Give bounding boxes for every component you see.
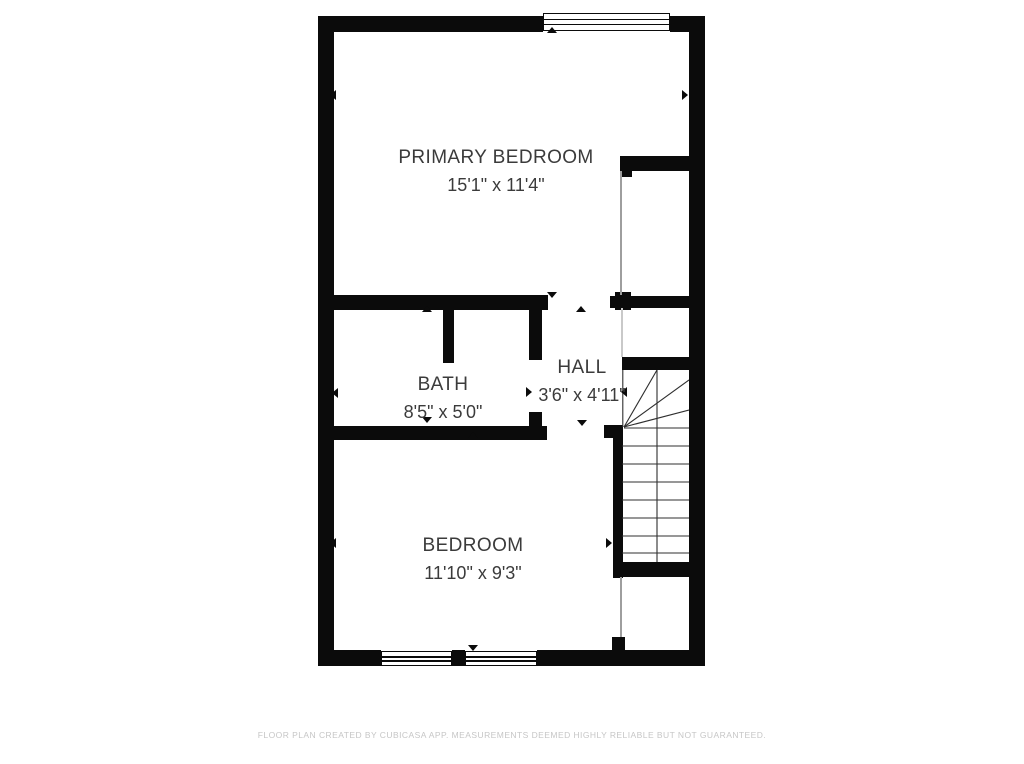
room-label-bedroom: BEDROOM 11'10" x 9'3" [373,535,573,584]
dim-marker-left-bath [332,388,338,398]
window-bottom-2 [465,651,537,666]
wall-stairs-south [613,562,689,577]
wall-bath-east-upper [529,295,542,360]
room-label-primary-bedroom: PRIMARY BEDROOM 15'1" x 11'4" [366,147,626,196]
window-pane-line [382,660,451,662]
floor-plan-canvas: PRIMARY BEDROOM 15'1" x 11'4" BATH 8'5" … [0,0,1024,764]
wall-post-hall-north [615,292,631,310]
wall-bottom-left [318,650,381,666]
dim-marker-up-hall [576,306,586,312]
room-dimensions: 15'1" x 11'4" [366,175,626,196]
wall-bath-partition [443,295,454,363]
room-name: BEDROOM [373,535,573,557]
floor-plan: PRIMARY BEDROOM 15'1" x 11'4" BATH 8'5" … [0,0,1024,764]
dim-marker-right-bedroom [606,538,612,548]
room-name: HALL [512,357,652,379]
dim-marker-down-hall [577,420,587,426]
wall-primary-bedroom-south [334,295,548,310]
wall-post-understair-closet [612,637,625,651]
room-dimensions: 11'10" x 9'3" [373,563,573,584]
dim-marker-up-bath [422,306,432,312]
wall-bottom-right [537,650,705,666]
wall-top-left [318,16,543,32]
window-pane-line [466,660,536,662]
wall-bottom-middle [452,650,465,666]
window-pane-line [382,656,451,658]
dim-marker-up-bedroom [468,432,478,438]
dim-marker-down-bedroom [468,645,478,651]
window-pane-line [544,19,669,21]
window-pane-line [544,24,669,26]
room-name: PRIMARY BEDROOM [366,147,626,169]
wall-left [318,16,334,666]
window-pane-line [466,656,536,658]
dim-marker-left-bedroom [330,538,336,548]
wall-bedroom-north [334,426,547,440]
dim-marker-left-primary-bedroom [330,90,336,100]
dim-marker-right-primary-bedroom [682,90,688,100]
window-bottom-1 [381,651,452,666]
dim-marker-up-primary-bedroom [547,27,557,33]
window-top [543,13,670,31]
wall-closet-north [622,156,705,171]
room-label-bath: BATH 8'5" x 5'0" [363,374,523,423]
room-dimensions: 8'5" x 5'0" [363,402,523,423]
wall-right [689,16,705,666]
footer-disclaimer: FLOOR PLAN CREATED BY CUBICASA APP. MEAS… [0,730,1024,740]
room-label-hall: HALL 3'6" x 4'11" [512,357,652,406]
room-dimensions: 3'6" x 4'11" [512,385,652,406]
understair-closet-front-line [620,577,622,639]
landing-edge-line [621,308,623,357]
dim-marker-down-primary-bedroom [547,292,557,298]
room-name: BATH [363,374,523,396]
